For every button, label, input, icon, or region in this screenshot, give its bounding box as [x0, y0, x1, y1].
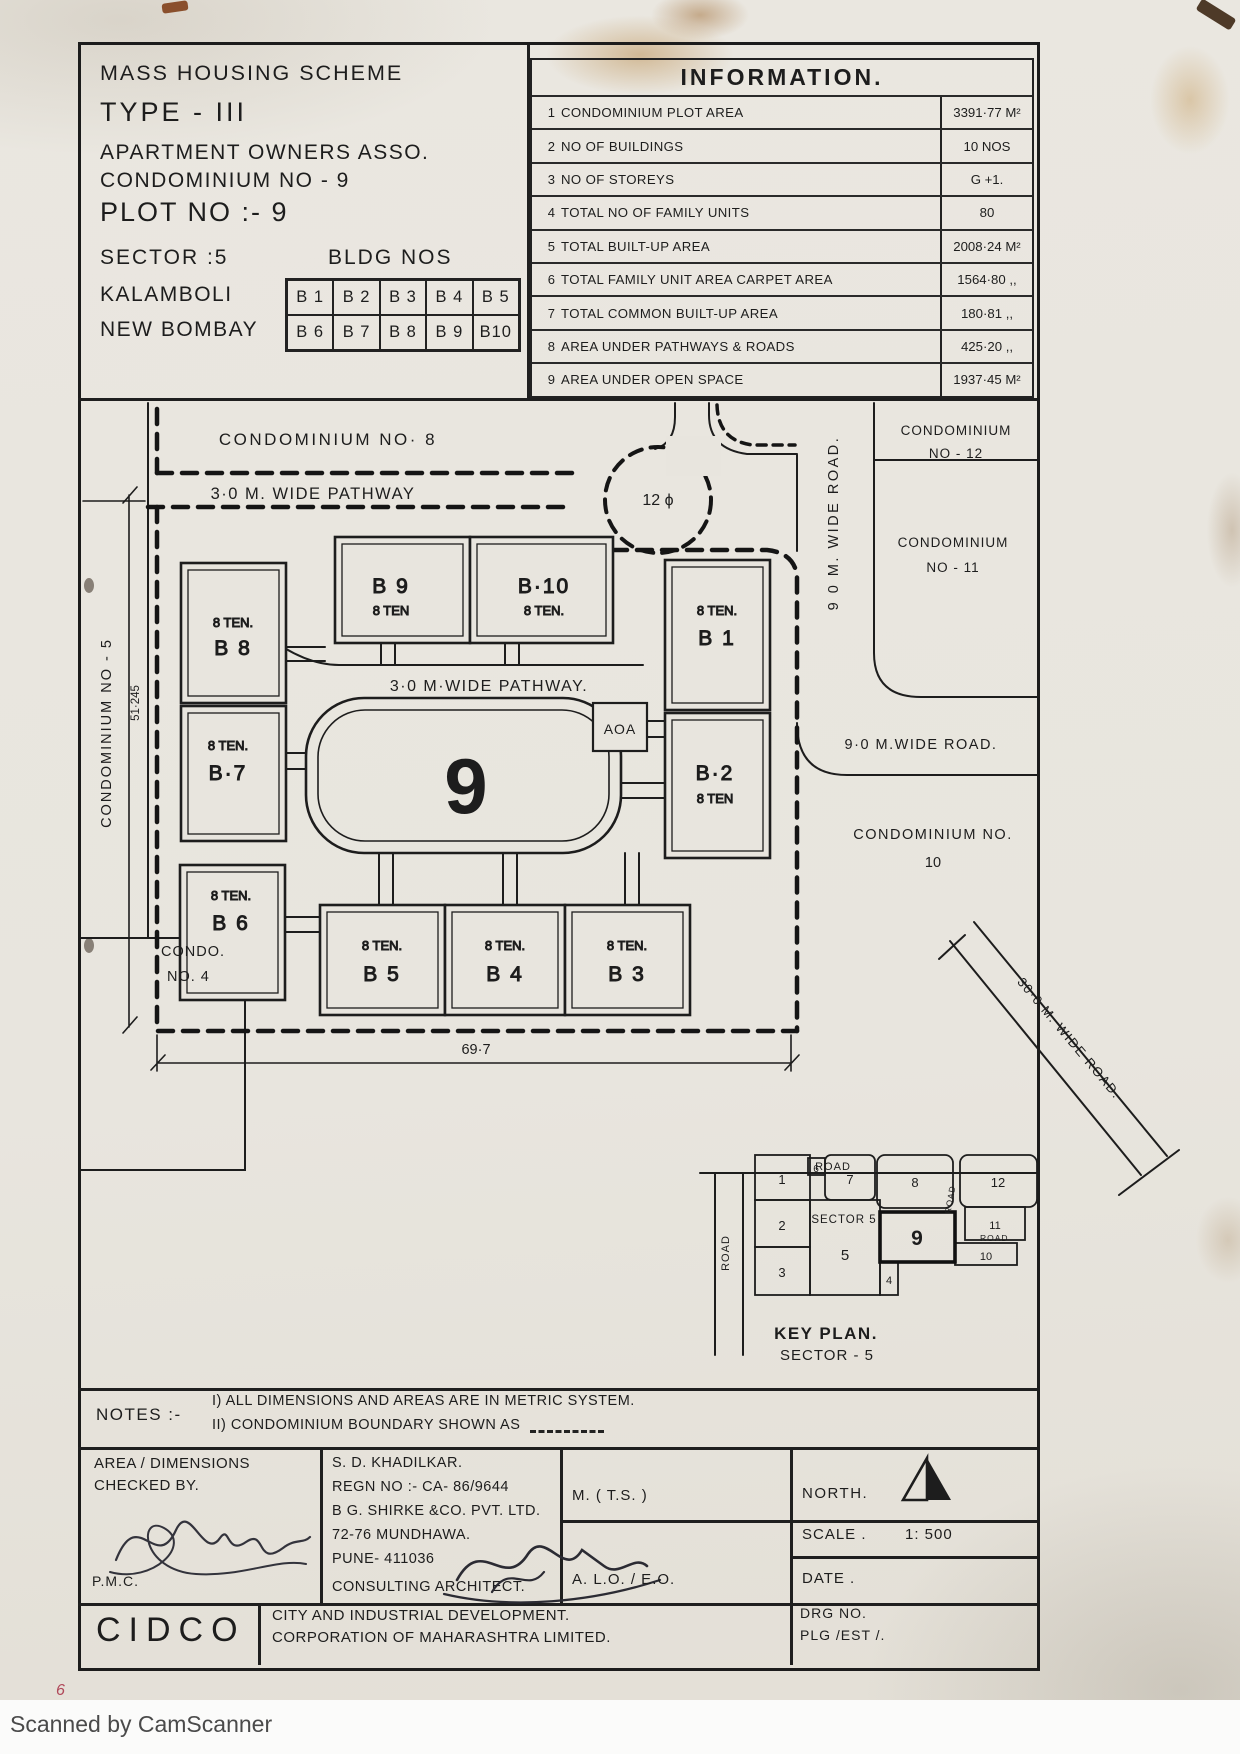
condo4-no2: NO. 4 — [167, 969, 210, 985]
bldg-cell: B 5 — [473, 280, 519, 315]
notes-label: NOTES :- — [96, 1406, 182, 1425]
corporation-line2: CORPORATION OF MAHARASHTRA LIMITED. — [272, 1630, 611, 1647]
table-row: 6TOTAL FAMILY UNIT AREA CARPET AREA1564·… — [532, 262, 1032, 295]
svg-text:B·7: B·7 — [209, 762, 248, 785]
pathway-top-label: 3·0 M. WIDE PATHWAY — [211, 485, 416, 503]
table-row: 8AREA UNDER PATHWAYS & ROADS425·20 ,, — [532, 329, 1032, 362]
culdesac-dia-label: 12 ϕ — [642, 492, 673, 509]
building-b3: 8 TEN. B 3 — [565, 905, 690, 1015]
svg-text:9: 9 — [911, 1227, 923, 1250]
svg-text:7: 7 — [846, 1172, 853, 1187]
margin-note: 6 — [56, 1682, 65, 1700]
scanned-drawing-page: MASS HOUSING SCHEME TYPE - III APARTMENT… — [0, 0, 1240, 1754]
svg-text:B 5: B 5 — [363, 963, 401, 986]
cidco-logo: CIDCO — [96, 1612, 246, 1649]
condo11-label: CONDOMINIUM — [898, 535, 1009, 550]
plot-number-label: 9 — [444, 742, 487, 830]
bldg-cell: B 3 — [380, 280, 426, 315]
svg-text:B 4: B 4 — [486, 963, 524, 986]
svg-text:8 TEN.: 8 TEN. — [208, 738, 248, 753]
svg-text:B 9: B 9 — [372, 575, 410, 598]
svg-text:10: 10 — [980, 1251, 992, 1263]
checked-by-line1: AREA / DIMENSIONS — [94, 1456, 250, 1473]
city-line1: KALAMBOLI — [100, 283, 233, 306]
dim-vertical-label: 51·245 — [130, 685, 142, 721]
building-b10: B·10 8 TEN. — [470, 537, 613, 643]
dim-horizontal-label: 69·7 — [461, 1042, 490, 1058]
alo-label: A. L.O. / E.O. — [572, 1572, 675, 1589]
condo11-no: NO - 11 — [926, 560, 979, 575]
building-b2: B·2 8 TEN — [665, 713, 770, 858]
boundary-dash-symbol — [530, 1430, 604, 1433]
sector-label: SECTOR :5 — [100, 246, 228, 269]
bldg-cell: B 7 — [333, 315, 379, 350]
svg-text:8 TEN.: 8 TEN. — [213, 615, 253, 630]
north-arrow-icon — [895, 1452, 959, 1506]
bldg-nos-label: BLDG NOS — [328, 246, 453, 269]
condo10-label: CONDOMINIUM NO. — [853, 827, 1012, 843]
keyplan-road-left-label: ROAD — [720, 1235, 732, 1271]
svg-text:B 3: B 3 — [608, 963, 646, 986]
bldg-cell: B10 — [473, 315, 519, 350]
architect-signature — [432, 1522, 672, 1607]
key-plan: 1 6 7 2 SECTOR 5 5 3 8 9 4 12 11 10 ROAD… — [700, 922, 1179, 1364]
table-row: 1CONDOMINIUM PLOT AREA3391·77 M² — [532, 95, 1032, 128]
note-1: I) ALL DIMENSIONS AND AREAS ARE IN METRI… — [212, 1394, 635, 1410]
keyplan-sector-label: SECTOR 5 — [811, 1214, 876, 1226]
architect-regn: REGN NO :- CA- 86/9644 — [332, 1480, 509, 1496]
corner-ink-mark — [1196, 0, 1237, 31]
corporation-line1: CITY AND INDUSTRIAL DEVELOPMENT. — [272, 1608, 570, 1625]
bldg-cell: B 1 — [287, 280, 333, 315]
condo8-label: CONDOMINIUM NO· 8 — [219, 430, 437, 449]
city-line2: NEW BOMBAY — [100, 318, 258, 341]
svg-text:12: 12 — [991, 1175, 1005, 1190]
scheme-title: MASS HOUSING SCHEME — [100, 62, 403, 86]
central-courtyard: AOA 9 — [306, 698, 647, 853]
condo12-no: NO - 12 — [929, 446, 983, 461]
building-b4: 8 TEN. B 4 — [445, 905, 565, 1015]
svg-text:4: 4 — [886, 1275, 892, 1287]
building-b5: 8 TEN. B 5 — [320, 905, 445, 1015]
road-right-vertical-label: 9 0 M. WIDE ROAD. — [826, 436, 842, 611]
drg-no-label: DRG NO. — [800, 1606, 867, 1621]
svg-text:8 TEN.: 8 TEN. — [524, 603, 564, 618]
information-title: INFORMATION. — [532, 60, 1032, 95]
bldg-cell: B 2 — [333, 280, 379, 315]
table-row: 9AREA UNDER OPEN SPACE1937·45 M² — [532, 362, 1032, 395]
bldg-nos-table: B 1 B 2 B 3 B 4 B 5 B 6 B 7 B 8 B 9 B10 — [285, 278, 521, 352]
svg-text:11: 11 — [989, 1220, 1000, 1232]
pathway-inner-label: 3·0 M·WIDE PATHWAY. — [390, 678, 588, 695]
table-row: 2NO OF BUILDINGS10 NOS — [532, 128, 1032, 161]
condo5-vertical-label: CONDOMINIUM NO - 5 — [99, 638, 115, 828]
mts-label: M. ( T.S. ) — [572, 1488, 648, 1505]
architect-address2: PUNE- 411036 — [332, 1552, 434, 1568]
table-row: 7TOTAL COMMON BUILT-UP AREA180·81 ,, — [532, 295, 1032, 328]
bldg-cell: B 4 — [426, 280, 472, 315]
svg-text:8 TEN: 8 TEN — [373, 603, 410, 618]
svg-text:1: 1 — [778, 1172, 785, 1187]
table-row: 4TOTAL NO OF FAMILY UNITS80 — [532, 195, 1032, 228]
keyplan-road-mid-label: ROAD — [980, 1233, 1009, 1243]
svg-text:8 TEN.: 8 TEN. — [211, 888, 251, 903]
checker-signature — [98, 1482, 323, 1587]
building-b1: 8 TEN. B 1 — [665, 560, 770, 710]
architect-firm: B G. SHIRKE &CO. PVT. LTD. — [332, 1504, 541, 1520]
condo12-label: CONDOMINIUM — [901, 423, 1012, 438]
building-b7: 8 TEN. B·7 — [181, 706, 286, 841]
bldg-cell: B 6 — [287, 315, 333, 350]
keyplan-subtitle: SECTOR - 5 — [780, 1347, 874, 1364]
keyplan-wide-road-label: 30·0 M. WIDE ROAD. — [1014, 975, 1124, 1102]
architect-name: S. D. KHADILKAR. — [332, 1456, 462, 1472]
road-right-horizontal-label: 9·0 M.WIDE ROAD. — [845, 737, 998, 753]
svg-text:8 TEN.: 8 TEN. — [697, 603, 737, 618]
bldg-cell: B 8 — [380, 315, 426, 350]
table-row: 5TOTAL BUILT-UP AREA2008·24 M² — [532, 229, 1032, 262]
north-label: NORTH. — [802, 1486, 868, 1503]
table-row: 3NO OF STOREYSG +1. — [532, 162, 1032, 195]
camscanner-watermark: Scanned by CamScanner — [10, 1712, 272, 1737]
ink-speck — [161, 0, 188, 14]
plot-no: PLOT NO :- 9 — [100, 198, 289, 228]
building-b9: B 9 8 TEN — [335, 537, 470, 643]
svg-text:2: 2 — [778, 1218, 785, 1233]
svg-text:8 TEN.: 8 TEN. — [485, 938, 525, 953]
scale-label: SCALE . — [802, 1527, 867, 1544]
drg-no-value: PLG /EST /. — [800, 1628, 885, 1643]
camscanner-bar: Scanned by CamScanner — [0, 1700, 1240, 1754]
building-b8: 8 TEN. B 8 — [181, 563, 286, 703]
condo4-label: CONDO. — [161, 944, 225, 960]
svg-text:3: 3 — [778, 1265, 785, 1280]
svg-text:8 TEN: 8 TEN — [697, 791, 734, 806]
svg-text:8 TEN.: 8 TEN. — [362, 938, 402, 953]
svg-text:B 1: B 1 — [698, 627, 736, 650]
bldg-cell: B 9 — [426, 315, 472, 350]
scheme-type: TYPE - III — [100, 98, 247, 128]
note-2: II) CONDOMINIUM BOUNDARY SHOWN AS — [212, 1418, 520, 1434]
svg-text:5: 5 — [841, 1247, 849, 1264]
svg-text:8: 8 — [911, 1175, 918, 1190]
keyplan-diagonal-road — [939, 922, 1179, 1195]
condominium-no: CONDOMINIUM NO - 9 — [100, 169, 350, 192]
date-label: DATE . — [802, 1571, 855, 1588]
svg-text:B·10: B·10 — [518, 575, 570, 598]
svg-text:8 TEN.: 8 TEN. — [607, 938, 647, 953]
owners-asso: APARTMENT OWNERS ASSO. — [100, 141, 429, 164]
svg-text:B 6: B 6 — [212, 912, 250, 935]
site-plan: AOA 9 8 TEN. B 8 8 TEN. B·7 8 TEN. B 6 — [81, 403, 1201, 1388]
information-table: INFORMATION. 1CONDOMINIUM PLOT AREA3391·… — [530, 58, 1034, 398]
aoa-label: AOA — [604, 721, 637, 737]
keyplan-road-top-label: ROAD — [815, 1161, 851, 1173]
svg-text:B·2: B·2 — [696, 762, 735, 785]
svg-text:B 8: B 8 — [214, 637, 252, 660]
keyplan-road-small-label: ROAD — [943, 1185, 958, 1215]
scale-value: 1: 500 — [905, 1527, 953, 1544]
condo10-no: 10 — [925, 855, 941, 871]
open-space-corner-dashed — [717, 405, 795, 445]
keyplan-title: KEY PLAN. — [774, 1324, 878, 1343]
